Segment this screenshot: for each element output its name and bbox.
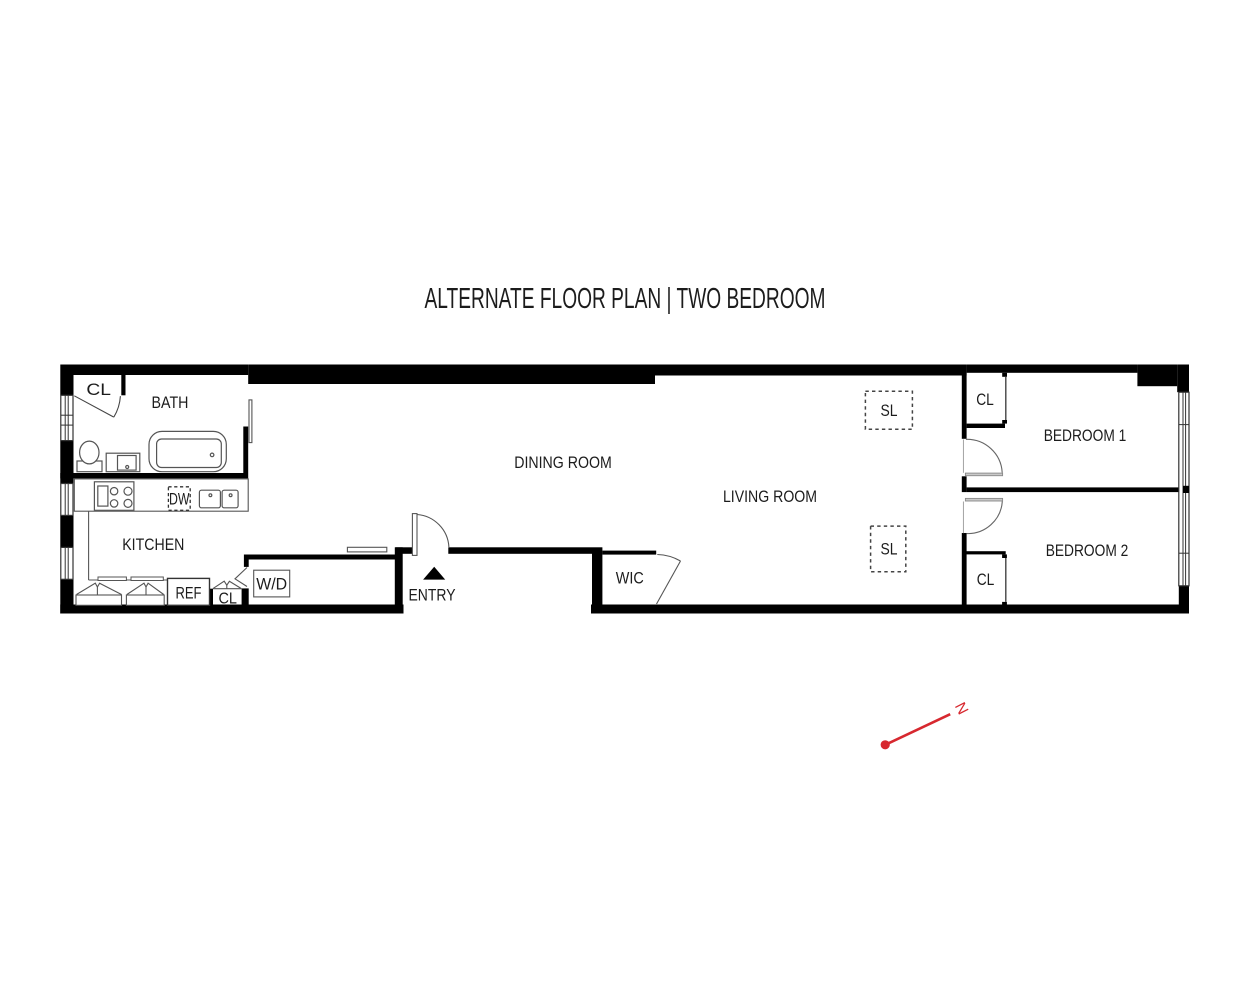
svg-text:KITCHEN: KITCHEN [122,535,184,554]
svg-text:W/D: W/D [256,575,287,594]
svg-text:SL: SL [881,540,898,559]
svg-text:SL: SL [881,401,898,420]
svg-text:DINING ROOM: DINING ROOM [514,453,612,472]
svg-text:ENTRY: ENTRY [409,586,456,605]
svg-text:WIC: WIC [616,569,644,588]
svg-text:CL: CL [86,380,111,399]
svg-text:CL: CL [976,390,994,409]
svg-text:BATH: BATH [152,393,189,412]
svg-text:CL: CL [218,590,237,607]
svg-text:CL: CL [977,570,995,589]
svg-text:DW: DW [169,490,190,509]
svg-text:LIVING ROOM: LIVING ROOM [723,487,817,506]
svg-text:REF: REF [176,584,202,603]
svg-text:BEDROOM 1: BEDROOM 1 [1044,426,1127,445]
svg-text:ALTERNATE FLOOR PLAN | TWO BED: ALTERNATE FLOOR PLAN | TWO BEDROOM [425,283,826,315]
svg-text:BEDROOM 2: BEDROOM 2 [1046,541,1129,560]
